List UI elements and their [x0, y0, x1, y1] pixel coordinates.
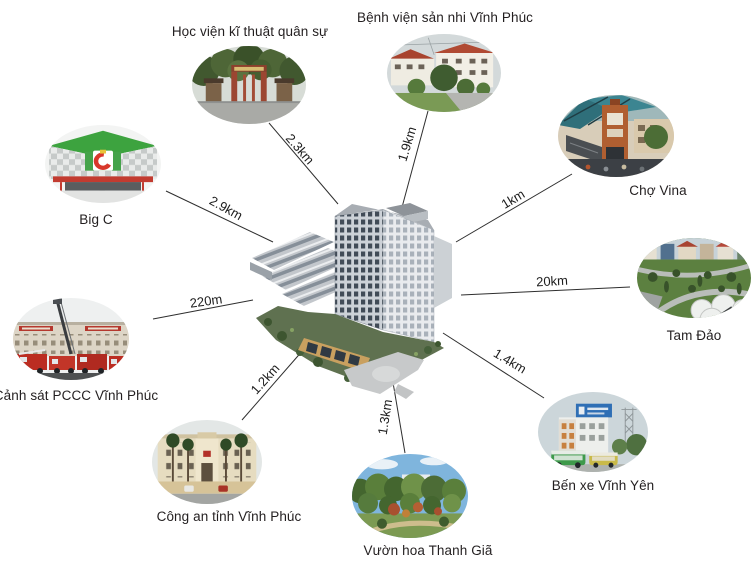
distance-label-tam-dao: 20km	[536, 273, 569, 290]
landmark-label-tam-dao: Tam Đảo	[667, 328, 722, 343]
landmark-label-ben-xe: Bến xe Vĩnh Yên	[552, 478, 655, 493]
landmark-photo-tam-dao	[637, 238, 751, 318]
landmark-label-canh-sat: Cảnh sát PCCC Vĩnh Phúc	[0, 388, 158, 403]
landmark-photo-cong-an	[152, 420, 262, 504]
location-diagram: Học viện kĩ thuật quân sự	[0, 0, 756, 573]
landmark-label-cong-an: Công an tỉnh Vĩnh Phúc	[157, 509, 302, 524]
market-illustration	[558, 95, 674, 177]
hill-town-illustration	[637, 238, 751, 318]
landmark-label-benh-vien: Bệnh viện sản nhi Vĩnh Phúc	[357, 10, 533, 25]
landmark-label-big-c: Big C	[79, 212, 113, 227]
fire-station-illustration	[13, 298, 129, 380]
landmark-photo-vuon-hoa	[352, 454, 468, 538]
landmark-photo-ben-xe	[538, 392, 648, 472]
landmark-label-cho-vina: Chợ Vina	[629, 183, 686, 198]
landmark-label-hoc-vien: Học viện kĩ thuật quân sự	[172, 24, 328, 39]
connector-line-cho-vina	[456, 174, 572, 242]
hospital-illustration	[387, 34, 501, 112]
bus-station-illustration	[538, 392, 648, 472]
landmark-photo-canh-sat	[13, 298, 129, 380]
police-headquarters-illustration	[152, 420, 262, 504]
landmark-label-vuon-hoa: Vườn hoa Thanh Giã	[363, 543, 492, 558]
landmark-photo-big-c	[45, 125, 161, 203]
military-academy-gate-illustration	[192, 46, 306, 124]
landmark-photo-benh-vien	[387, 34, 501, 112]
landmark-photo-cho-vina	[558, 95, 674, 177]
flower-park-illustration	[352, 454, 468, 538]
landmark-photo-hoc-vien	[192, 46, 306, 124]
big-c-store-illustration	[45, 125, 161, 203]
